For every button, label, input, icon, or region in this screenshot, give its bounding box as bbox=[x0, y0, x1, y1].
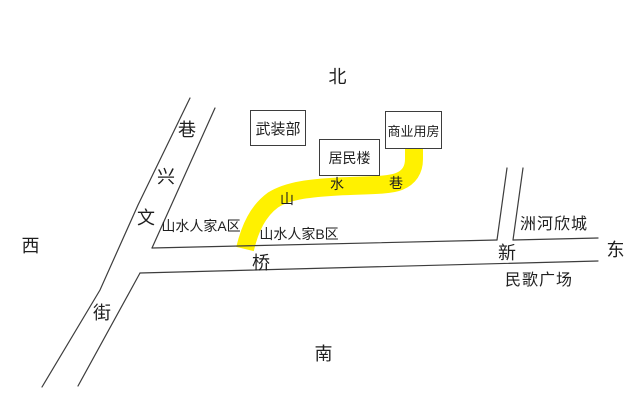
compass-east-label: 东 bbox=[607, 241, 626, 259]
area-label-minge-plaza: 民歌广场 bbox=[505, 273, 573, 289]
compass-west-label: 西 bbox=[22, 237, 41, 255]
yellow-lane-char-2: 水 bbox=[330, 177, 344, 191]
diagonal-road-right-line-lower bbox=[78, 273, 140, 386]
building-label-armed-forces: 武装部 bbox=[255, 118, 300, 139]
compass-south-label: 南 bbox=[315, 345, 334, 363]
area-label-zhouhe-xincheng: 洲河欣城 bbox=[520, 217, 588, 233]
main-road-char-1: 桥 bbox=[252, 254, 270, 272]
diagonal-road-left-line bbox=[42, 98, 190, 387]
main-road-char-2: 新 bbox=[498, 244, 516, 262]
compass-north-label: 北 bbox=[329, 68, 348, 86]
side-road-left-line bbox=[497, 168, 507, 240]
diagonal-road-char-1: 巷 bbox=[178, 121, 196, 139]
yellow-lane-char-1: 山 bbox=[280, 192, 294, 206]
sketch-map: 北 南 西 东 巷 兴 文 街 桥 新 山 水 巷 山水人家A区 山水人家B区 … bbox=[0, 0, 640, 416]
building-box-commercial: 商业用房 bbox=[385, 111, 442, 149]
building-box-armed-forces: 武装部 bbox=[250, 110, 306, 146]
building-label-residential: 居民楼 bbox=[329, 148, 371, 168]
yellow-lane-char-3: 巷 bbox=[389, 176, 403, 190]
main-road-top-line-east bbox=[513, 238, 598, 240]
building-label-commercial: 商业用房 bbox=[387, 121, 439, 140]
area-label-shanshui-b: 山水人家B区 bbox=[259, 227, 338, 241]
diagonal-road-char-2: 兴 bbox=[157, 168, 175, 186]
diagonal-road-char-3: 文 bbox=[137, 209, 155, 227]
diagonal-road-char-4: 街 bbox=[93, 304, 111, 322]
building-box-residential: 居民楼 bbox=[319, 139, 380, 176]
area-label-shanshui-a: 山水人家A区 bbox=[161, 219, 240, 233]
